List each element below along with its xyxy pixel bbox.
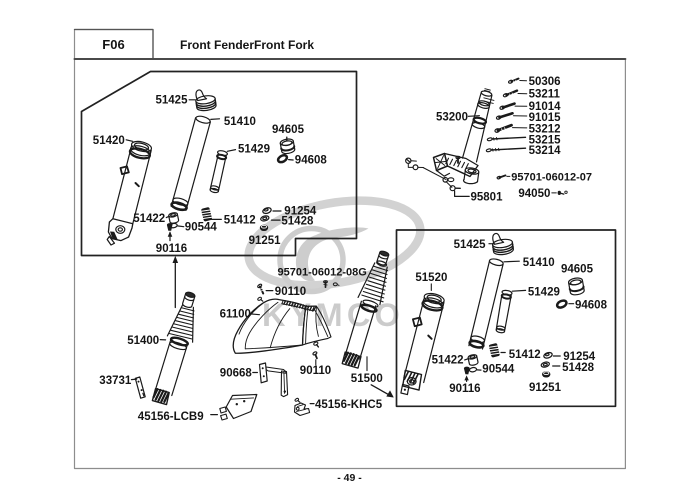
svg-text:95701-06012-08G: 95701-06012-08G	[278, 267, 367, 279]
svg-text:90668: 90668	[220, 367, 253, 379]
svg-text:51428: 51428	[281, 215, 314, 227]
svg-text:51412: 51412	[224, 214, 256, 226]
svg-text:94608: 94608	[295, 154, 328, 166]
svg-text:94608: 94608	[575, 299, 608, 311]
svg-text:F06: F06	[102, 37, 124, 52]
svg-text:51520: 51520	[415, 272, 447, 284]
svg-text:51429: 51429	[238, 144, 270, 156]
svg-text:90110: 90110	[300, 365, 331, 377]
svg-text:95701-06012-07: 95701-06012-07	[511, 171, 592, 183]
svg-text:91251: 91251	[529, 382, 562, 394]
svg-text:95801: 95801	[471, 191, 504, 203]
svg-text:51425: 51425	[454, 239, 487, 251]
svg-text:90544: 90544	[482, 364, 515, 376]
svg-text:51425: 51425	[156, 95, 189, 107]
svg-text:51410: 51410	[523, 257, 555, 269]
svg-text:50306: 50306	[529, 76, 561, 88]
svg-text:33731: 33731	[99, 375, 132, 387]
svg-text:51422: 51422	[432, 354, 464, 366]
svg-text:53214: 53214	[529, 145, 562, 157]
svg-text:51428: 51428	[562, 362, 595, 374]
svg-text:51500: 51500	[351, 373, 383, 385]
svg-text:90544: 90544	[185, 222, 218, 234]
svg-text:KYMCO: KYMCO	[262, 297, 404, 333]
svg-text:94605: 94605	[272, 124, 305, 136]
svg-text:51420: 51420	[93, 135, 125, 147]
svg-text:51429: 51429	[528, 287, 560, 299]
svg-text:51400: 51400	[127, 335, 159, 347]
svg-text:45156-LCB9: 45156-LCB9	[138, 411, 204, 423]
svg-text:94605: 94605	[561, 263, 594, 275]
svg-text:91251: 91251	[249, 235, 282, 247]
svg-text:51412: 51412	[509, 349, 541, 361]
svg-text:- 49 -: - 49 -	[337, 472, 362, 484]
svg-text:91015: 91015	[529, 112, 562, 124]
svg-text:61100: 61100	[220, 309, 251, 321]
svg-text:Front FenderFront Fork: Front FenderFront Fork	[180, 38, 314, 52]
svg-text:51410: 51410	[224, 116, 256, 128]
svg-text:90110: 90110	[275, 286, 306, 298]
svg-text:53200: 53200	[436, 112, 468, 124]
svg-text:51422: 51422	[133, 213, 165, 225]
svg-text:53211: 53211	[529, 88, 561, 100]
svg-text:45156-KHC5: 45156-KHC5	[315, 399, 383, 411]
svg-text:90116: 90116	[449, 383, 480, 395]
svg-text:94050: 94050	[518, 188, 550, 200]
svg-text:90116: 90116	[156, 243, 187, 255]
